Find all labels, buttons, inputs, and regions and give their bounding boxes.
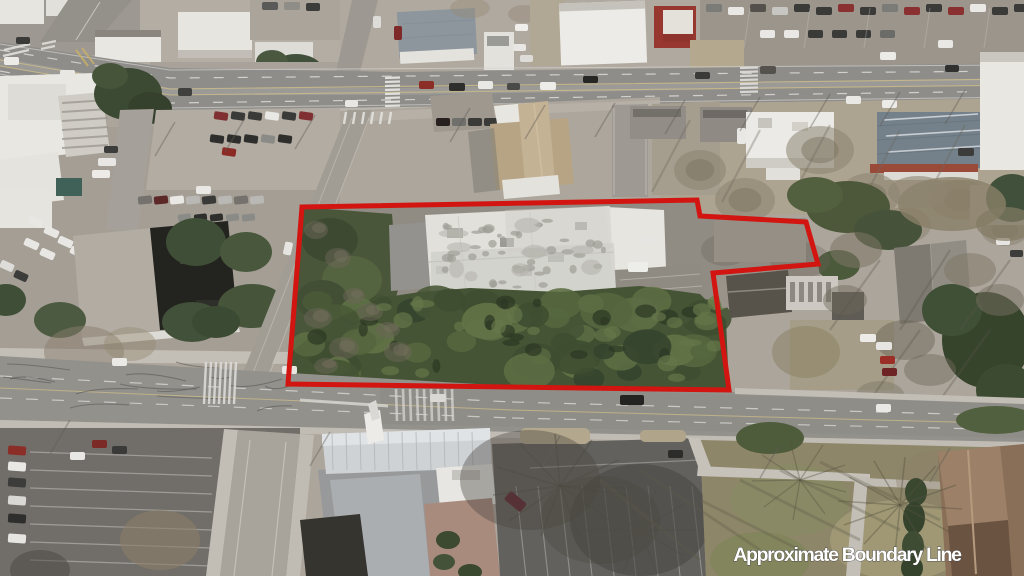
svg-text:Approximate Boundary Line: Approximate Boundary Line: [733, 544, 962, 566]
